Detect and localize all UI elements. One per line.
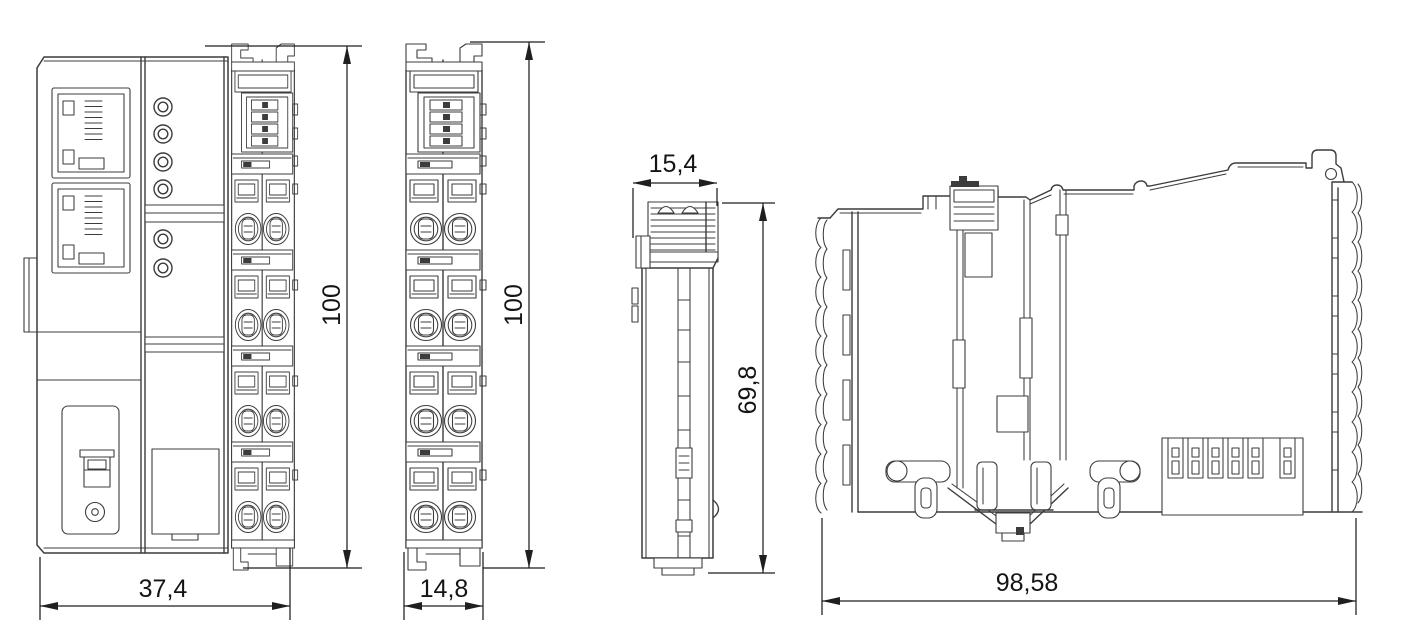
terminal-front-view <box>406 44 486 570</box>
dimensional-drawing: 100 37,4 100 14,8 15,4 69,8 <box>0 0 1404 641</box>
drawing-svg: 100 37,4 100 14,8 15,4 69,8 <box>0 0 1404 641</box>
label-area <box>152 449 219 540</box>
dim-label-coupler-height: 100 <box>318 284 346 326</box>
dim-label-side-height: 69,8 <box>734 366 762 415</box>
lower-window <box>997 396 1028 432</box>
power-section <box>62 406 119 534</box>
terminal-side-view <box>632 202 719 575</box>
din-latch-right <box>1090 461 1140 518</box>
upper-window <box>965 233 992 277</box>
hatched-connector-block <box>645 202 718 268</box>
panel-divider <box>145 337 224 344</box>
dim-label-coupler-width: 37,4 <box>139 575 188 603</box>
ebus-terminal-slice <box>232 44 298 570</box>
din-rail-groove <box>948 462 1068 541</box>
contact-comb <box>1162 438 1303 515</box>
release-bump <box>713 500 719 518</box>
ethernet-port-top <box>52 88 130 178</box>
dim-label-terminal-height: 100 <box>500 284 528 326</box>
dim-label-side-width: 15,4 <box>649 150 698 178</box>
terminal-slice <box>406 44 486 570</box>
dim-label-profile-width: 98,58 <box>996 569 1059 597</box>
mounting-clip-block <box>950 176 998 230</box>
corrugated-edge-left <box>816 212 858 513</box>
ethernet-port-bottom <box>52 183 130 273</box>
side-foot <box>654 558 702 575</box>
dim-profile-width: 98,58 <box>822 518 1356 615</box>
dim-coupler-width: 37,4 <box>40 548 290 620</box>
power-connector <box>80 450 114 487</box>
internal-walls <box>953 190 1068 488</box>
top-profile <box>830 150 1344 218</box>
din-rail-tab <box>24 258 38 332</box>
mounting-hole <box>1326 169 1337 180</box>
panel-divider <box>145 205 224 213</box>
dim-terminal-height: 100 <box>470 42 545 568</box>
terminal-profile-view <box>816 150 1362 541</box>
dim-label-terminal-width: 14,8 <box>420 575 469 603</box>
groove-foot <box>996 513 1030 533</box>
corrugated-edge-right <box>1332 182 1362 512</box>
coupler-front-view <box>24 44 298 570</box>
clip-hook <box>951 176 979 187</box>
din-latch-left <box>886 461 950 518</box>
power-led <box>86 503 105 522</box>
